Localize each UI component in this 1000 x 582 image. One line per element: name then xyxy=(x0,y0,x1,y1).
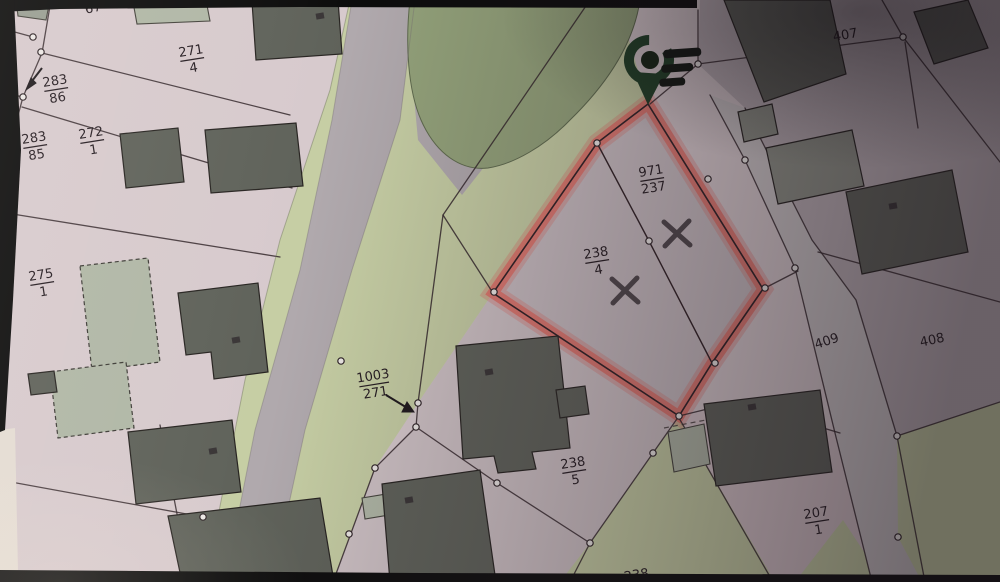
building-footprint xyxy=(382,470,496,582)
building-footprint xyxy=(120,128,184,188)
survey-point xyxy=(413,424,419,430)
label-denominator: 85 xyxy=(27,147,46,164)
survey-point xyxy=(646,238,652,244)
survey-point xyxy=(650,450,656,456)
survey-point xyxy=(894,433,900,439)
survey-point xyxy=(494,480,500,486)
survey-point xyxy=(372,465,378,471)
survey-point xyxy=(338,358,344,364)
survey-point xyxy=(705,176,711,182)
survey-point xyxy=(712,360,718,366)
building-footprint xyxy=(205,123,303,193)
label-denominator: 86 xyxy=(48,90,67,107)
building-footprint xyxy=(128,420,241,504)
paper-edge xyxy=(0,428,18,572)
survey-point xyxy=(20,94,26,100)
building-annex xyxy=(668,424,710,472)
map-canvas: 67 271 4 283 86 283 85 272 1 275 1 1003 xyxy=(0,0,1000,582)
survey-point xyxy=(415,400,421,406)
survey-point xyxy=(587,540,593,546)
building-footprint xyxy=(50,362,134,438)
survey-point xyxy=(762,285,768,291)
survey-point xyxy=(491,289,497,295)
survey-point xyxy=(200,514,206,520)
survey-point xyxy=(900,34,906,40)
survey-point xyxy=(594,140,600,146)
building-footprint xyxy=(252,0,342,60)
building-annex xyxy=(556,386,589,418)
survey-point xyxy=(895,534,901,540)
survey-point xyxy=(792,265,798,271)
building-footprint xyxy=(704,390,832,486)
parcel-label-971-237: 971 237 xyxy=(638,162,668,197)
building-footprint xyxy=(28,371,57,395)
survey-point xyxy=(30,34,36,40)
pin-dot xyxy=(641,51,659,69)
survey-point xyxy=(346,531,352,537)
survey-point xyxy=(676,413,682,419)
building-footprint xyxy=(80,258,160,371)
cadastral-map-photo: 67 271 4 283 86 283 85 272 1 275 1 1003 xyxy=(0,0,1000,582)
survey-point xyxy=(695,61,701,67)
survey-point xyxy=(38,49,44,55)
survey-point xyxy=(742,157,748,163)
